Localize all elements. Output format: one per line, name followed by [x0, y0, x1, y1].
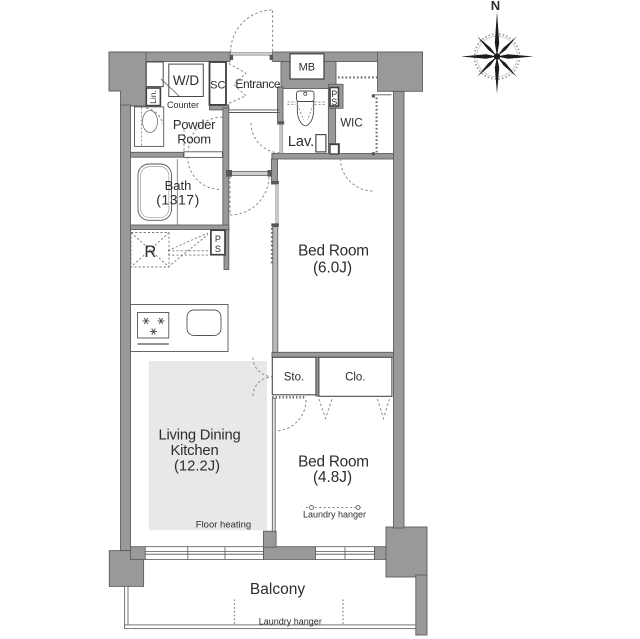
svg-text:Bed Room: Bed Room: [298, 454, 369, 471]
svg-text:MB: MB: [299, 62, 316, 74]
svg-text:(12.2J): (12.2J): [174, 459, 220, 475]
svg-text:W/D: W/D: [173, 73, 199, 88]
svg-text:S: S: [331, 97, 337, 107]
svg-text:WIC: WIC: [340, 118, 362, 130]
svg-text:Laundry hanger: Laundry hanger: [259, 616, 322, 626]
svg-text:Powder: Powder: [173, 117, 216, 132]
svg-text:SC: SC: [210, 80, 225, 92]
svg-text:Balcony: Balcony: [250, 581, 305, 598]
svg-text:Clo.: Clo.: [345, 372, 365, 384]
svg-text:(6.0J): (6.0J): [313, 260, 352, 277]
svg-text:Kitchen: Kitchen: [171, 443, 219, 459]
svg-text:P: P: [215, 234, 221, 244]
svg-text:Laundry hanger: Laundry hanger: [303, 509, 366, 519]
svg-text:(4.8J): (4.8J): [313, 469, 352, 486]
svg-text:Bed Room: Bed Room: [298, 243, 369, 260]
svg-text:N: N: [491, 0, 500, 13]
svg-text:(1317): (1317): [156, 192, 199, 208]
svg-text:Floor heating: Floor heating: [196, 519, 251, 530]
svg-text:Living Dining: Living Dining: [158, 428, 240, 444]
svg-text:Counter: Counter: [167, 100, 199, 110]
svg-text:Lin.: Lin.: [148, 90, 158, 104]
svg-text:R: R: [144, 243, 156, 261]
svg-text:Lav.: Lav.: [288, 134, 314, 150]
svg-text:Room: Room: [177, 132, 210, 147]
svg-text:S: S: [215, 244, 221, 254]
svg-text:Entrance: Entrance: [235, 77, 281, 91]
svg-text:Sto.: Sto.: [284, 372, 304, 384]
